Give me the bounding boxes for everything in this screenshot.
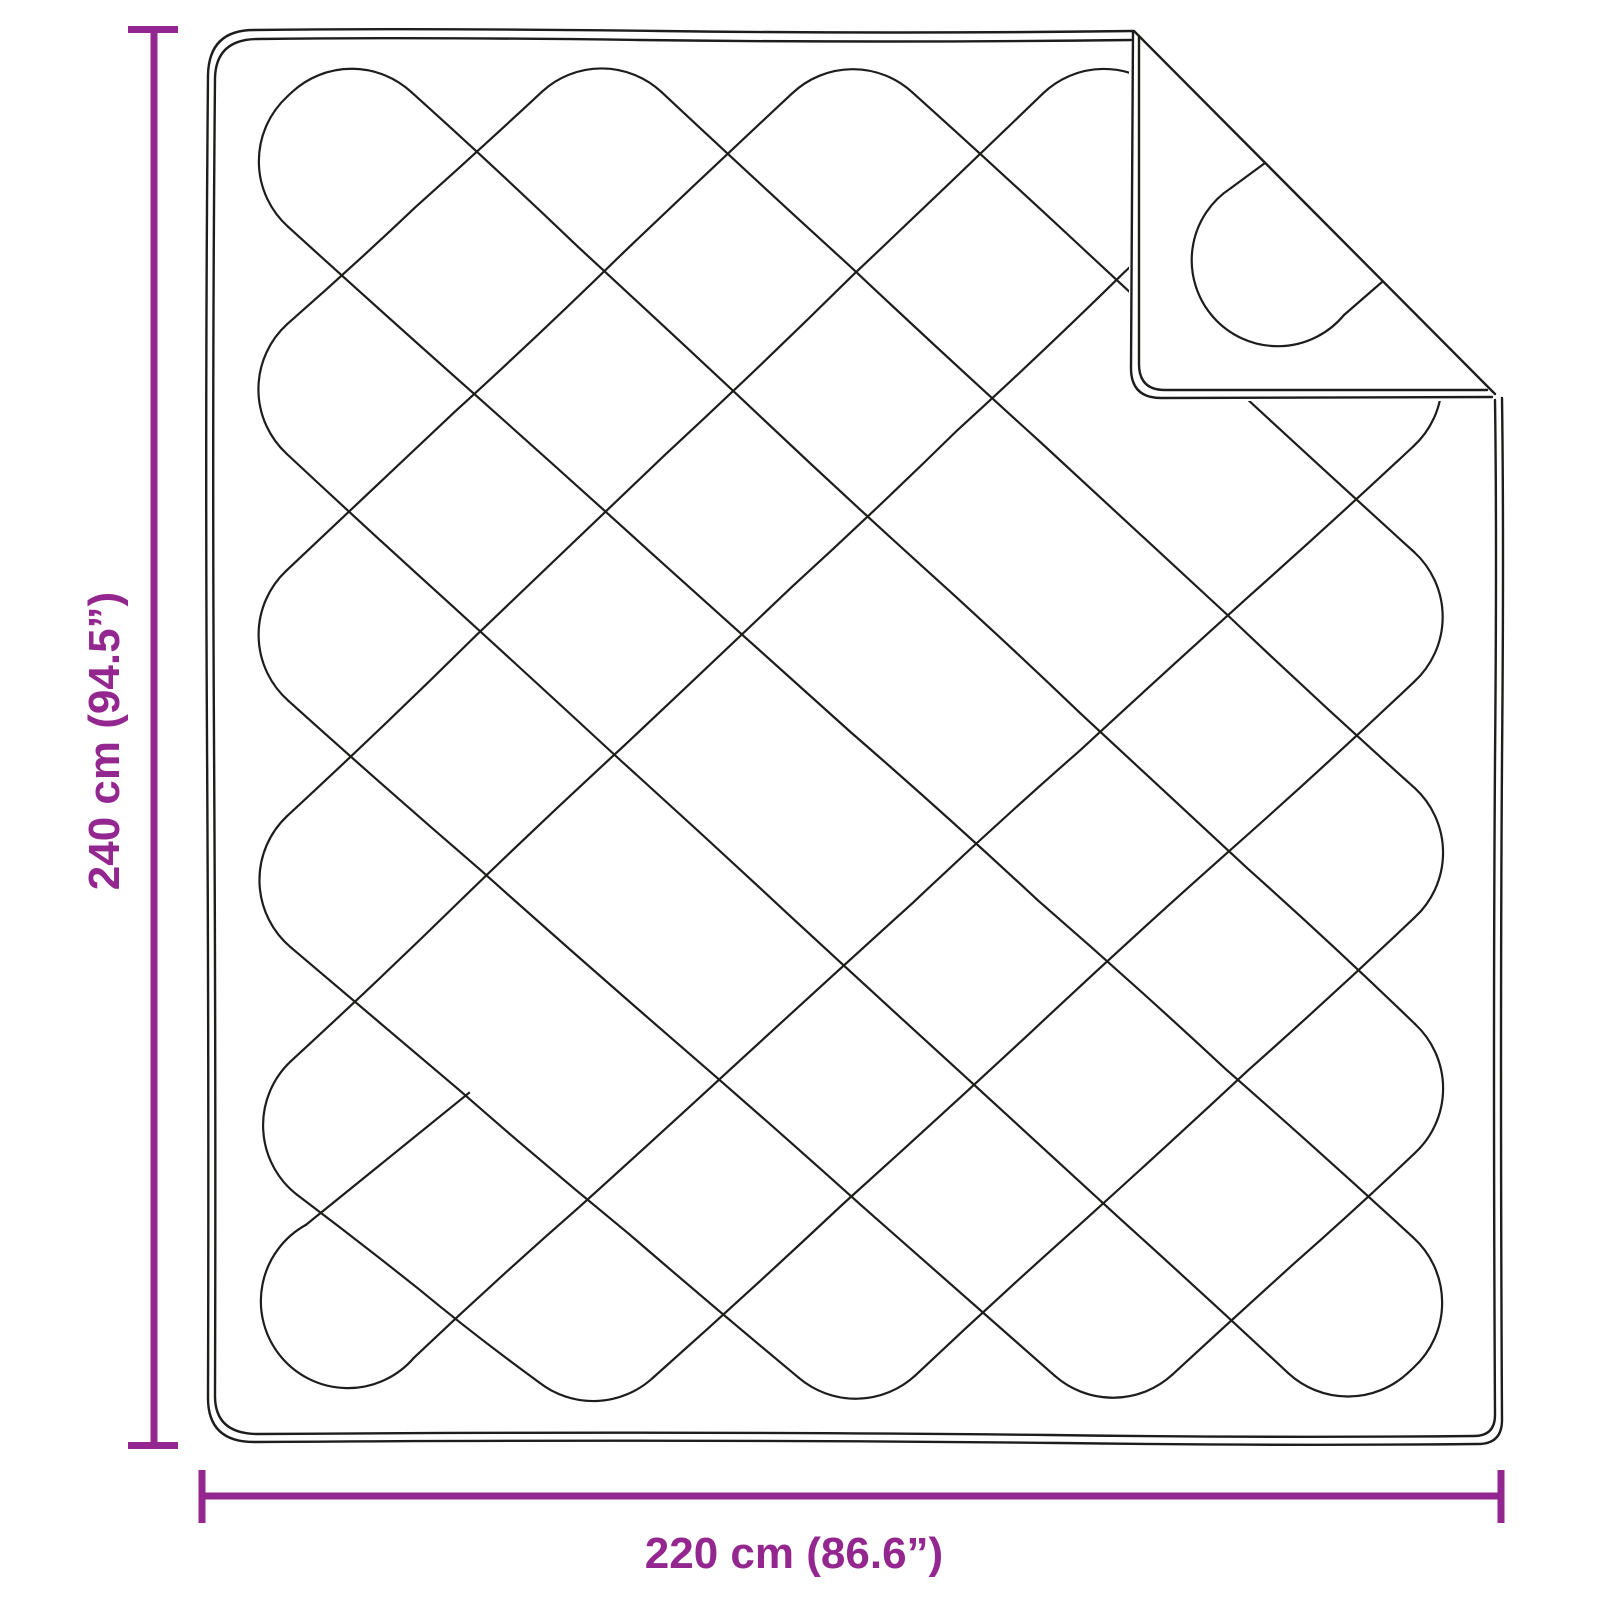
- svg-text:220 cm (86.6”): 220 cm (86.6”): [645, 1529, 943, 1578]
- svg-text:240 cm (94.5”): 240 cm (94.5”): [80, 592, 129, 890]
